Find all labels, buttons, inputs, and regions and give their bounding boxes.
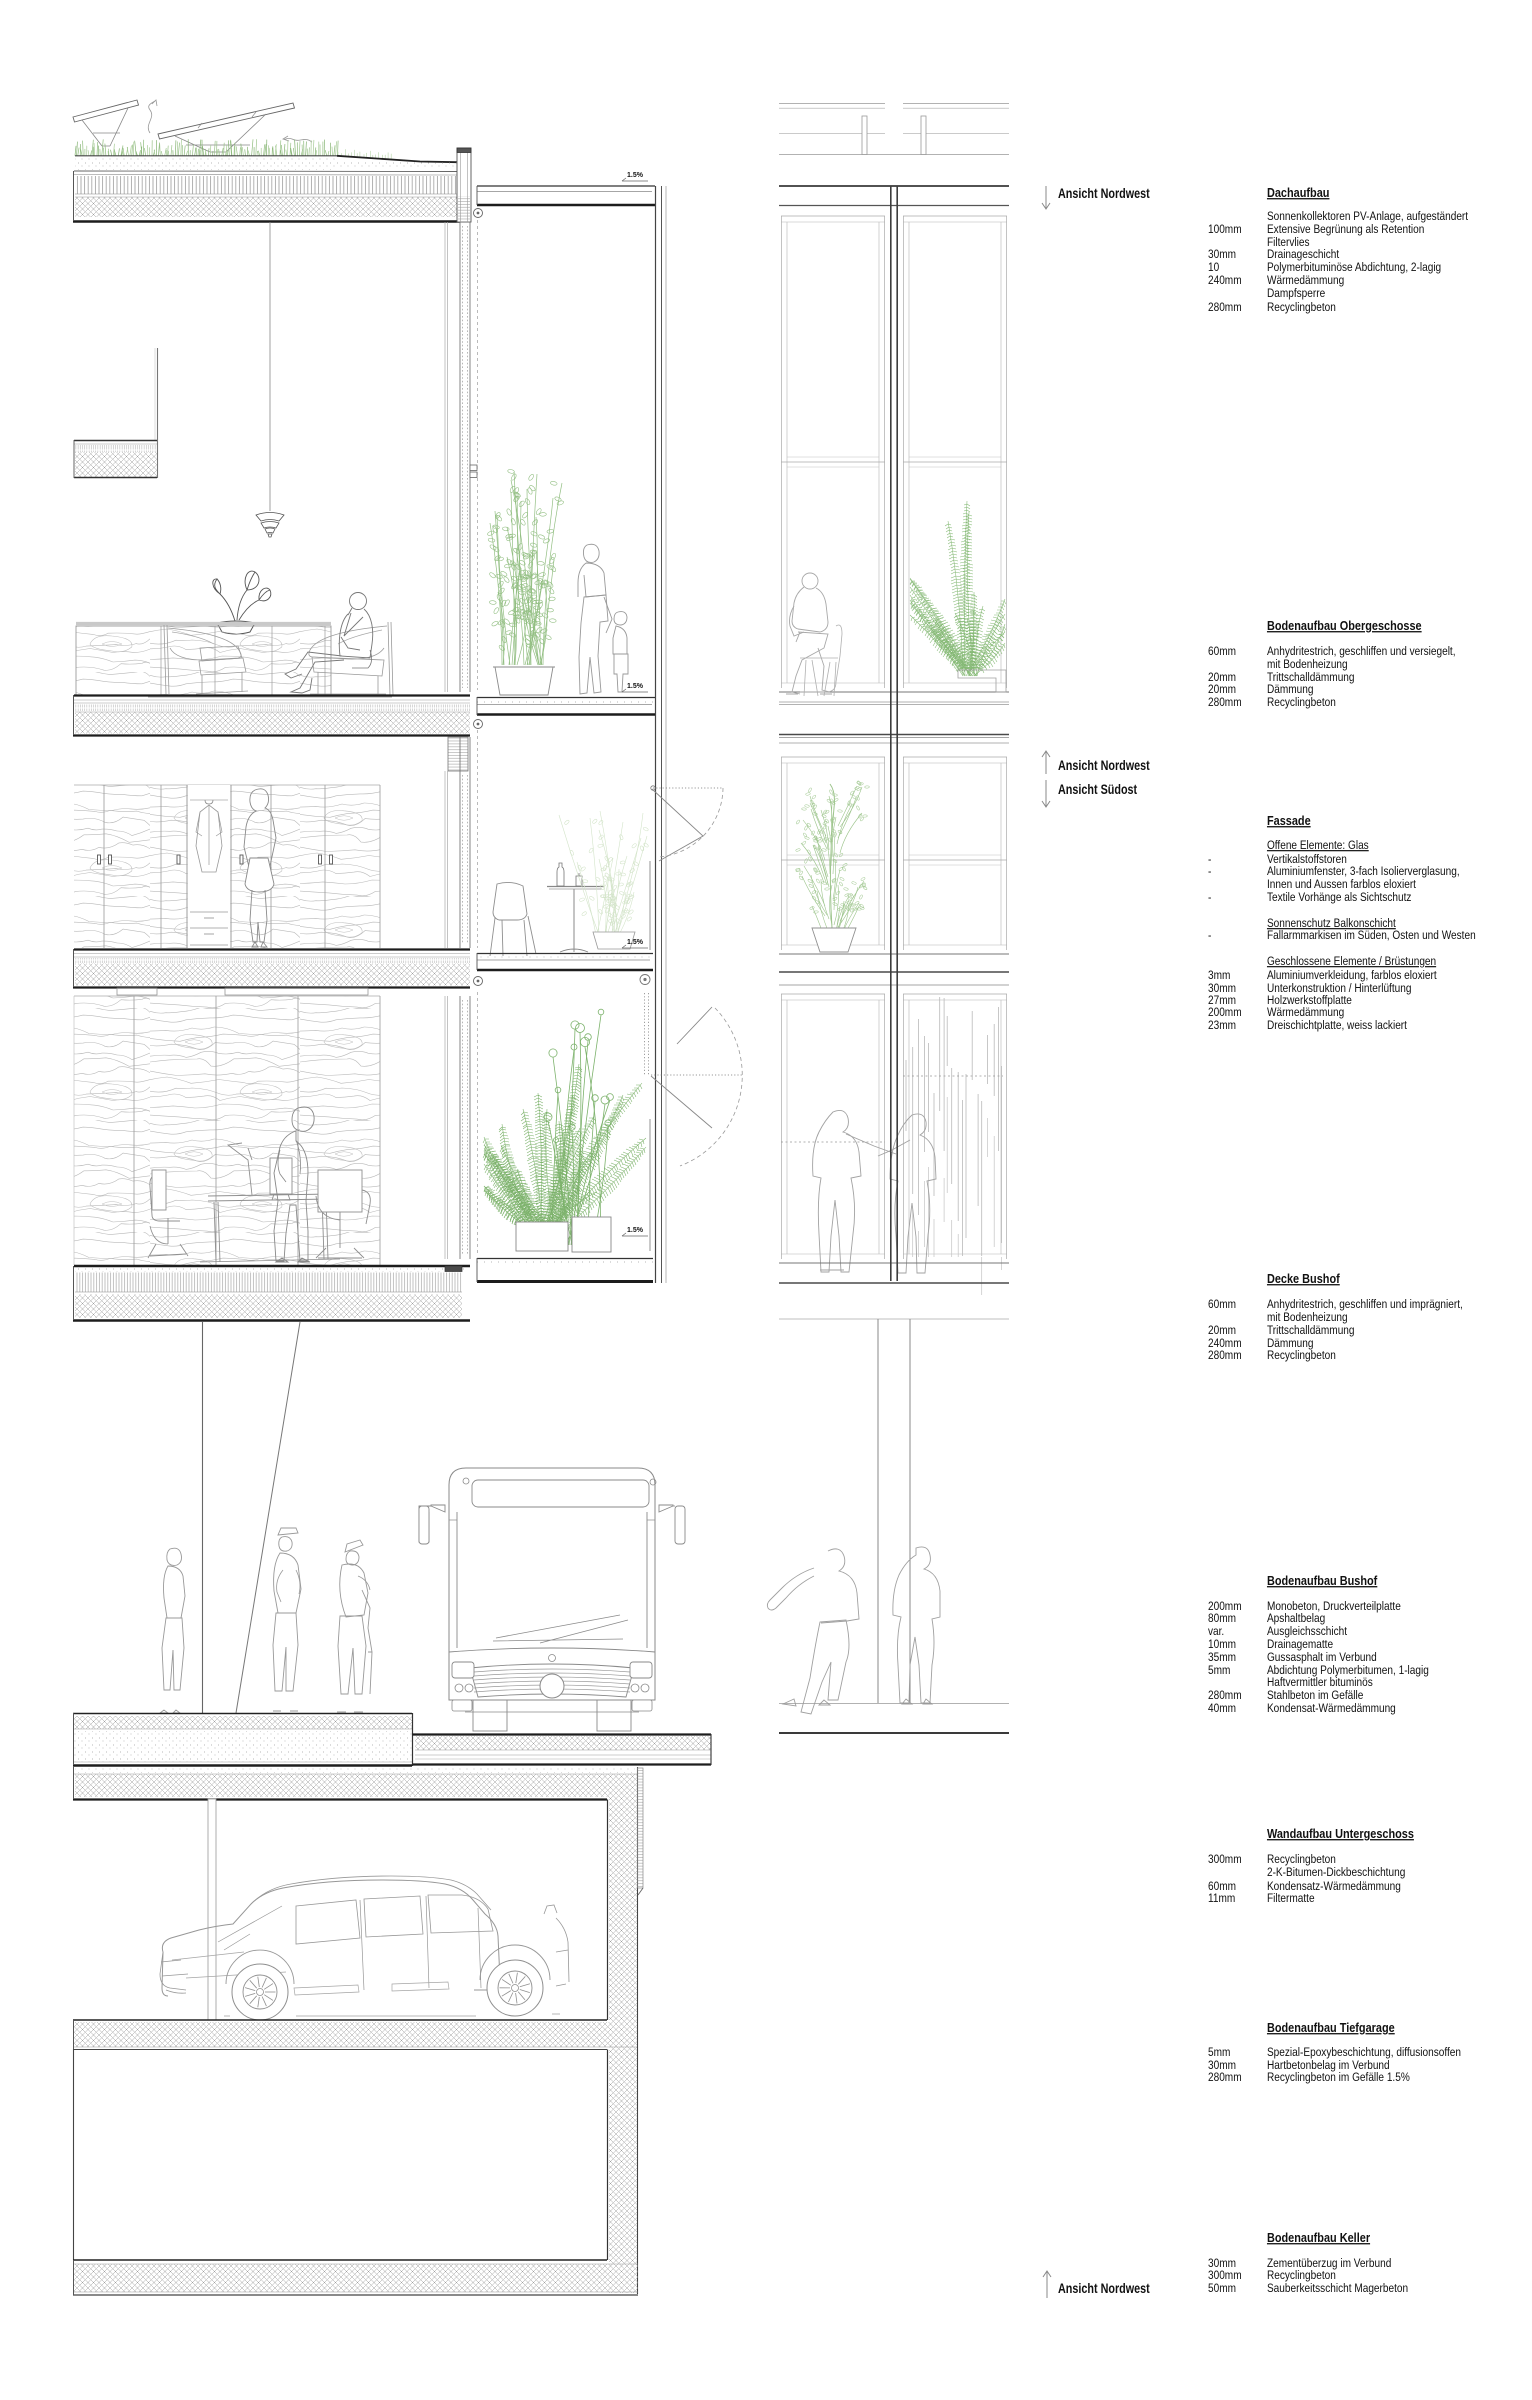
svg-text:Ansicht Nordwest: Ansicht Nordwest [1058,2281,1150,2296]
svg-text:Recyclingbeton: Recyclingbeton [1267,2269,1336,2282]
svg-text:5mm: 5mm [1208,1664,1230,1677]
svg-text:Anhydritestrich, geschliffen u: Anhydritestrich, geschliffen und imprägn… [1267,1298,1463,1311]
svg-text:30mm: 30mm [1208,248,1236,261]
svg-text:280mm: 280mm [1208,2071,1242,2084]
svg-text:Filtermatte: Filtermatte [1267,1892,1315,1905]
svg-text:Ausgleichsschicht: Ausgleichsschicht [1267,1625,1347,1638]
svg-text:Trittschalldämmung: Trittschalldämmung [1267,1324,1355,1337]
svg-text:mit Bodenheizung: mit Bodenheizung [1267,658,1348,671]
svg-text:Apshaltbelag: Apshaltbelag [1267,1612,1325,1625]
svg-text:Gussasphalt im Verbund: Gussasphalt im Verbund [1267,1651,1377,1664]
svg-text:Aluminiumfenster, 3-fach Isoli: Aluminiumfenster, 3-fach Isolierverglasu… [1267,865,1460,878]
svg-text:Kondensat-Wärmedämmung: Kondensat-Wärmedämmung [1267,1702,1396,1715]
svg-text:Recyclingbeton: Recyclingbeton [1267,1853,1336,1866]
svg-text:Polymerbituminöse Abdichtung,: Polymerbituminöse Abdichtung, 2-lagig [1267,261,1441,274]
svg-text:40mm: 40mm [1208,1702,1236,1715]
svg-text:Geschlossene Elemente / Brüstu: Geschlossene Elemente / Brüstungen [1267,955,1436,968]
svg-text:Sonnenkollektoren PV-Anlage, a: Sonnenkollektoren PV-Anlage, aufgestände… [1267,210,1468,223]
svg-text:-: - [1208,929,1212,942]
svg-text:Recyclingbeton: Recyclingbeton [1267,301,1336,314]
svg-text:Drainageschicht: Drainageschicht [1267,248,1339,261]
svg-text:1.5%: 1.5% [627,683,644,690]
svg-text:-: - [1208,865,1212,878]
svg-text:Extensive Begrünung als Retent: Extensive Begrünung als Retention [1267,223,1424,236]
svg-text:100mm: 100mm [1208,223,1242,236]
svg-text:Dämmung: Dämmung [1267,683,1313,696]
svg-text:1.5%: 1.5% [627,1227,644,1234]
svg-text:200mm: 200mm [1208,1006,1242,1019]
svg-text:20mm: 20mm [1208,683,1236,696]
svg-text:Wärmedämmung: Wärmedämmung [1267,274,1344,287]
svg-text:80mm: 80mm [1208,1612,1236,1625]
svg-text:Bodenaufbau Tiefgarage: Bodenaufbau Tiefgarage [1267,2020,1395,2035]
svg-text:Wandaufbau Untergeschoss: Wandaufbau Untergeschoss [1267,1826,1414,1841]
svg-text:11mm: 11mm [1208,1892,1235,1905]
svg-text:Textile Vorhänge als Sichtschu: Textile Vorhänge als Sichtschutz [1267,891,1412,904]
svg-text:280mm: 280mm [1208,696,1242,709]
svg-text:Bodenaufbau Keller: Bodenaufbau Keller [1267,2230,1370,2245]
svg-text:1.5%: 1.5% [627,939,644,946]
svg-text:Ansicht Nordwest: Ansicht Nordwest [1058,186,1150,201]
svg-text:Sauberkeitsschicht Magerbeton: Sauberkeitsschicht Magerbeton [1267,2282,1408,2295]
svg-text:Fassade: Fassade [1267,813,1311,828]
svg-text:60mm: 60mm [1208,1298,1236,1311]
svg-text:50mm: 50mm [1208,2282,1236,2295]
svg-text:1.5%: 1.5% [627,172,644,179]
svg-text:Anhydritestrich, geschliffen u: Anhydritestrich, geschliffen und versieg… [1267,645,1456,658]
svg-text:3mm: 3mm [1208,969,1230,982]
svg-text:Wärmedämmung: Wärmedämmung [1267,1006,1344,1019]
svg-text:23mm: 23mm [1208,1019,1236,1032]
svg-text:280mm: 280mm [1208,301,1242,314]
svg-text:35mm: 35mm [1208,1651,1236,1664]
svg-text:Recyclingbeton: Recyclingbeton [1267,1349,1336,1362]
svg-text:10mm: 10mm [1208,1638,1236,1651]
svg-text:280mm: 280mm [1208,1349,1242,1362]
svg-text:Decke Bushof: Decke Bushof [1267,1271,1341,1286]
svg-text:300mm: 300mm [1208,2269,1242,2282]
svg-text:240mm: 240mm [1208,274,1242,287]
svg-text:Spezial-Epoxybeschichtung, dif: Spezial-Epoxybeschichtung, diffusionsoff… [1267,2046,1461,2059]
svg-text:Bodenaufbau Obergeschosse: Bodenaufbau Obergeschosse [1267,618,1422,633]
svg-text:Innen und Aussen farblos eloxi: Innen und Aussen farblos eloxiert [1267,878,1416,891]
svg-text:Ansicht Südost: Ansicht Südost [1058,782,1137,797]
svg-text:Fallarmmarkisen im Süden, Oste: Fallarmmarkisen im Süden, Osten und West… [1267,929,1476,942]
svg-text:5mm: 5mm [1208,2046,1230,2059]
svg-text:20mm: 20mm [1208,1324,1236,1337]
svg-text:Drainagematte: Drainagematte [1267,1638,1333,1651]
svg-text:Recyclingbeton: Recyclingbeton [1267,696,1336,709]
svg-text:Bodenaufbau Bushof: Bodenaufbau Bushof [1267,1573,1378,1588]
svg-text:300mm: 300mm [1208,1853,1242,1866]
svg-text:Offene Elemente: Glas: Offene Elemente: Glas [1267,839,1369,852]
svg-text:10: 10 [1208,261,1219,274]
svg-text:Dreischichtplatte, weiss lacki: Dreischichtplatte, weiss lackiert [1267,1019,1407,1032]
svg-text:-: - [1208,891,1212,904]
svg-text:Recyclingbeton im Gefälle 1.5%: Recyclingbeton im Gefälle 1.5% [1267,2071,1410,2084]
svg-text:var.: var. [1208,1625,1224,1638]
svg-text:Dachaufbau: Dachaufbau [1267,185,1329,200]
svg-text:2-K-Bitumen-Dickbeschichtung: 2-K-Bitumen-Dickbeschichtung [1267,1866,1405,1879]
svg-text:280mm: 280mm [1208,1689,1242,1702]
svg-text:mit Bodenheizung: mit Bodenheizung [1267,1311,1348,1324]
svg-text:Ansicht Nordwest: Ansicht Nordwest [1058,758,1150,773]
svg-text:Stahlbeton im Gefälle: Stahlbeton im Gefälle [1267,1689,1363,1702]
svg-text:60mm: 60mm [1208,645,1236,658]
svg-text:Dampfsperre: Dampfsperre [1267,287,1325,300]
svg-text:Haftvermittler bituminös: Haftvermittler bituminös [1267,1676,1373,1689]
svg-text:Aluminiumverkleidung, farblos: Aluminiumverkleidung, farblos eloxiert [1267,969,1437,982]
